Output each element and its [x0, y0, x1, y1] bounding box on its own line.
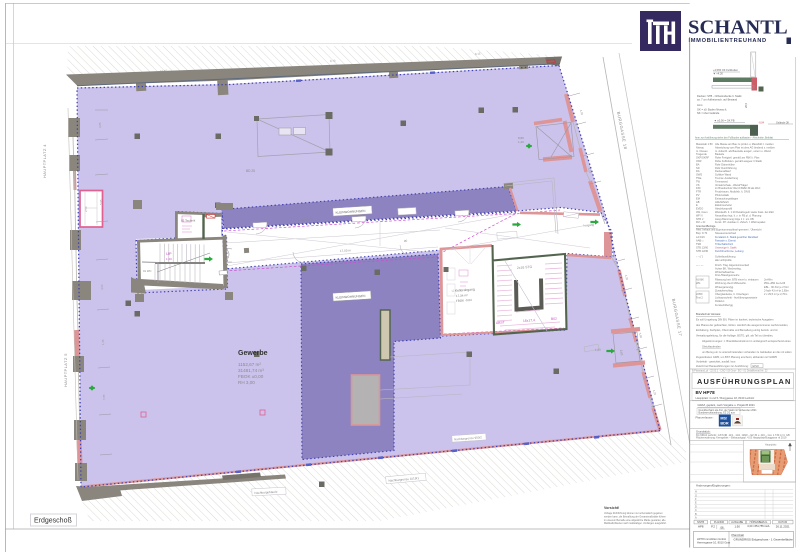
svg-text:Abschlussprofil: Abschlussprofil	[715, 207, 733, 211]
svg-text:Tragende: Tragende	[696, 152, 707, 156]
svg-text:TWa: TWa	[696, 176, 702, 180]
svg-text:NK = über Gelände: NK = über Gelände	[697, 111, 720, 115]
svg-text:7,85: 7,85	[102, 394, 106, 400]
svg-text:IMMOBILIENTREUHAND: IMMOBILIENTREUHAND	[689, 38, 767, 44]
svg-text:E: E	[696, 203, 698, 207]
svg-text:HAUPTPLATZ 5: HAUPTPLATZ 5	[63, 353, 68, 387]
svg-text:m. Aufenth. als Baustelle ausg: m. Aufenth. als Baustelle ausgef., exter…	[715, 149, 771, 153]
svg-text:ca. 7 cm Aufbetonsch. auf Best: ca. 7 cm Aufbetonsch. auf Bestand	[697, 98, 738, 102]
svg-text:AUSFÜHRUNGSPLAN: AUSFÜHRUNGSPLAN	[697, 377, 791, 386]
svg-text:TSB: TSB	[696, 242, 701, 246]
svg-text:F30: F30	[696, 186, 701, 190]
svg-text:Grenzen/Bezüge: Grenzen/Bezüge	[696, 224, 716, 228]
svg-text:Flächenwidmung: Kerngebiet – B: Flächenwidmung: Kerngebiet – Bebauungspl…	[696, 437, 787, 440]
svg-text:Fenst. Prf. Ausbau m. Zubeh. f: Fenst. Prf. Ausbau m. Zubeh. f. Wärmepak…	[715, 220, 766, 224]
svg-text:2,50: 2,50	[84, 206, 88, 212]
svg-text:EVDO: EVDO	[696, 207, 703, 211]
svg-text:Abweichung vom Plan ist dem AG: Abweichung vom Plan ist dem AG bindend z…	[715, 145, 775, 149]
svg-text:BDR: BDR	[720, 422, 728, 426]
svg-text:H: H	[695, 491, 697, 494]
svg-text:▼ ±0,00 = OK FB: ▼ ±0,00 = OK FB	[714, 119, 735, 123]
svg-text:2,01/2,26: 2,01/2,26	[300, 217, 313, 222]
svg-text:Maßfestlichkeiten nach maßstab: Maßfestlichkeiten nach maßstabger. Umfän…	[604, 522, 667, 525]
svg-text:GRUNDRISS Erdgeschoss - 1 Ge: GRUNDRISS Erdgeschoss - 1 Gewerbefläche	[734, 538, 794, 542]
svg-text:BA: BA	[696, 162, 700, 166]
svg-text:HAUPTPLATZ 4: HAUPTPLATZ 4	[42, 144, 47, 178]
svg-text:Abgestimmungen: z. Brandüberei: Abgestimmungen: z. Brandübereinstimmt in…	[702, 339, 791, 343]
svg-text:+4,565 OK Fußboden: +4,565 OK Fußboden	[713, 68, 739, 72]
svg-text:Niveauunterschied: Niveauunterschied	[715, 231, 737, 235]
svg-text:Erdgeschoß: Erdgeschoß	[34, 518, 72, 525]
svg-text:Feuchtraum, Abdichtb. lt. ÖN B: Feuchtraum, Abdichtb. lt. ÖN B	[715, 190, 750, 194]
svg-text:3,85: 3,85	[98, 122, 102, 128]
svg-text:m. Niveau: m. Niveau	[696, 149, 708, 153]
svg-text:Einhaltung, Fachplan, Obermaße: Einhaltung, Fachplan, Obermaße und Bemaß…	[696, 328, 778, 332]
svg-text:FBOK ±0,00: FBOK ±0,00	[238, 374, 264, 379]
svg-text:First-/Wandgeometrie: First-/Wandgeometrie	[715, 273, 740, 277]
svg-text:PLANNR: PLANNR	[714, 521, 724, 524]
svg-text:Bundesrechtsordnung, EZ 2/2 au: Bundesrechtsordnung, EZ 2/2 aus	[699, 411, 736, 414]
svg-text:OKF/OKRF: OKF/OKRF	[696, 156, 709, 160]
svg-text:Rfassung betr. BTB einzel u. e: Rfassung betr. BTB einzel u. einbauen	[715, 278, 759, 282]
svg-text:1152,67 m²: 1152,67 m²	[238, 362, 261, 367]
svg-text:FM + 2J: FM + 2J	[696, 220, 706, 224]
svg-text:WG: WG	[696, 281, 700, 285]
svg-text:Ausg./Dämmung folge 1 z. um OB: Ausg./Dämmung folge 1 z. um OB	[715, 217, 754, 221]
svg-text:STB 12/60: STB 12/60	[696, 246, 709, 250]
svg-text:des Planes der gebrachten, feh: des Planes der gebrachten, fehlen. sämtl…	[696, 323, 789, 327]
svg-text:Rohr Dämmhülse: Rohr Dämmhülse	[715, 162, 735, 166]
svg-text:HÖHENBEZUG: HÖHENBEZUG	[750, 521, 768, 524]
svg-text:alle Lichtprofile: alle Lichtprofile	[715, 259, 732, 262]
svg-text:MS!: MS!	[720, 417, 727, 421]
svg-text:Vorbehalt - gewichtet, ausfall: Vorbehalt - gewichtet, ausfall. bzw.	[696, 360, 736, 364]
svg-text:1,35: 1,35	[101, 339, 105, 345]
svg-text:Rohr Durchführung: Rohr Durchführung	[715, 166, 737, 170]
svg-text:8,15: 8,15	[475, 52, 481, 56]
svg-text:Deckenablauf: Deckenablauf	[715, 169, 731, 173]
svg-text:Entrauchungsklappe: Entrauchungsklappe	[715, 196, 739, 200]
svg-text:Gewerbe: Gewerbe	[238, 350, 268, 357]
svg-text:Abst. bebaut und Eigentumsnach: Abst. bebaut und Eigentumsnachbar/-grenz…	[696, 228, 762, 232]
svg-text:Wandaufb. lt. 1:10 Detailregel: Wandaufb. lt. 1:10 Detailregeln sowie Fa…	[715, 210, 774, 214]
svg-text:PV: PV	[696, 193, 700, 197]
svg-text:Rollo/en: Rollo/en	[715, 299, 725, 303]
svg-text:ZWL+RW 1a-2+06: ZWL+RW 1a-2+06	[764, 281, 786, 285]
svg-text:SCHANTL: SCHANTL	[688, 17, 788, 39]
svg-text:AAB □: AAB □	[696, 238, 704, 242]
svg-text:1,20: 1,20	[518, 140, 524, 144]
svg-text:5,95: 5,95	[99, 199, 103, 205]
svg-text:Trennw. Ausfachung: Trennw. Ausfachung	[715, 176, 739, 180]
svg-text:UP: UP	[166, 251, 172, 256]
svg-text:BV HP78: BV HP78	[696, 390, 716, 395]
svg-text:Fensterlüfter/gg: Fensterlüfter/gg	[715, 303, 733, 307]
svg-text:1,00: 1,00	[166, 257, 172, 261]
svg-text:2 x 29,5 m² je 2,70m: 2 x 29,5 m² je 2,70m	[764, 292, 787, 296]
svg-text:Vorsicht!: Vorsicht!	[604, 506, 619, 510]
svg-text:OKR: OKR	[696, 159, 702, 163]
svg-text:VS: VS	[696, 183, 700, 187]
svg-text:Alle Masse am Bau zu prüfen u.: Alle Masse am Bau zu prüfen u. Massbild …	[715, 142, 774, 146]
svg-text:Planverfasser:: Planverfasser:	[696, 415, 714, 419]
svg-text:P.2: P.2	[711, 525, 715, 529]
svg-text:-0,04: -0,04	[759, 122, 765, 125]
svg-text:Fundation lt. Statik gesichter: Fundation lt. Statik gesichter Randlauf	[715, 235, 758, 239]
svg-text:Wirtschaftsachse: Wirtschaftsachse	[715, 270, 735, 274]
svg-text:26,5: 26,5	[744, 102, 748, 108]
svg-text:Fassade o. Eternit: Fassade o. Eternit	[715, 238, 736, 242]
svg-text:Zuletzt bei Planausführungen z: Zuletzt bei Planausführungen zur Ausführ…	[696, 364, 749, 368]
svg-text:Schlitze Wand: Schlitze Wand	[715, 173, 732, 177]
svg-text:Massstab 1:50: Massstab 1:50	[696, 142, 713, 146]
svg-text:9,70: 9,70	[330, 59, 336, 63]
svg-text:DATUM: DATUM	[778, 521, 787, 524]
svg-text:0,00 =351,755 müA: 0,00 =351,755 müA	[748, 525, 770, 528]
svg-text:Überglasdecke, lt. Unterlagen: Überglasdecke, lt. Unterlagen	[715, 292, 749, 296]
svg-text:Rohe Fertigteil. gemäß am FBK: Rohe Fertigteil. gemäß am FBK lt. Plan	[715, 156, 760, 160]
svg-text:Decken: STB - Ortbetondecke lt: Decken: STB - Ortbetondecke lt. Statik	[697, 94, 742, 98]
svg-text:Anm zur Ausführung siehe den F: Anm zur Ausführung siehe den Fußboden au…	[695, 137, 773, 140]
svg-text:EM: EM	[696, 196, 700, 200]
svg-text:LA 0/16: LA 0/16	[696, 235, 705, 239]
svg-text:Anm:: Anm:	[697, 103, 703, 107]
svg-text:Hauptplatz 4 und 5 / Burggasse: Hauptplatz 4 und 5 / Burggasse 18, 8430 …	[696, 396, 756, 400]
svg-text:Photovoltaik: Photovoltaik	[715, 193, 730, 197]
svg-text:Rohe Fußböden. gemäß ausgew. l: Rohe Fußböden. gemäß ausgew. lt.Statik	[715, 159, 763, 163]
svg-text:WF N: WF N	[696, 213, 703, 217]
svg-text:Niveau: Niveau	[696, 145, 705, 149]
svg-text:B02: B02	[551, 317, 557, 321]
svg-text:Vorsatzschale - Wand/Träger: Vorsatzschale - Wand/Träger	[715, 183, 748, 187]
svg-text:DA: DA	[696, 169, 700, 173]
svg-text:— - —: — - —	[696, 264, 704, 267]
svg-text:ABST: ABST	[496, 320, 505, 325]
svg-text:Text 2: Text 2	[696, 296, 703, 300]
svg-text:C: C	[695, 509, 697, 512]
svg-text:GWS: GWS	[696, 173, 702, 177]
svg-text:26.11.2021: 26.11.2021	[776, 525, 790, 529]
svg-text:STB 12/30: STB 12/30	[696, 249, 709, 253]
svg-text:2-fach 43 m² je 2,65m: 2-fach 43 m² je 2,65m	[764, 288, 789, 292]
svg-text:Schleifausführung: Schleifausführung	[715, 254, 736, 258]
svg-text:NTR 2: NTR 2	[696, 217, 704, 221]
svg-text:Herrengasse 10, 8010 Graz: Herrengasse 10, 8010 Graz	[697, 541, 731, 545]
svg-text:G: G	[695, 494, 697, 497]
svg-text:01 WC: 01 WC	[143, 269, 152, 273]
svg-text:Änderungen/Ergänzungen:: Änderungen/Ergänzungen:	[696, 484, 731, 488]
svg-text:HP78 Immobilien GmbH: HP78 Immobilien GmbH	[697, 537, 726, 541]
svg-text:Planinhalt: Planinhalt	[732, 533, 745, 537]
svg-text:1:50: 1:50	[734, 525, 740, 529]
svg-text:HP8: HP8	[698, 525, 704, 529]
svg-text:Es soll Umgebung DIN EN, Pläne: Es soll Umgebung DIN EN, Pläne im konkre…	[696, 317, 774, 321]
svg-text:MSTB: MSTB	[697, 521, 704, 524]
svg-text:4,60: 4,60	[100, 284, 104, 290]
svg-text:⌐ ¬ |¯|: ⌐ ¬ |¯|	[696, 254, 703, 258]
svg-text:Wohnung oben/ Mitbewohn.: Wohnung oben/ Mitbewohn.	[715, 281, 747, 285]
svg-text:05 Technik: 05 Technik	[181, 219, 196, 223]
svg-text:2m²/lfm: 2m²/lfm	[764, 278, 773, 282]
svg-text:GRAZ, geplant, nach Vorgabe u.: GRAZ, geplant, nach Vorgabe u. Projekt B…	[698, 403, 756, 407]
svg-text:16x17,4: 16x17,4	[523, 318, 535, 323]
svg-text:Achse BK, Wechselstg.: Achse BK, Wechselstg.	[715, 266, 742, 270]
svg-text:Bsp: N 70: Bsp: N 70	[696, 231, 708, 235]
svg-text:D: D	[695, 505, 697, 508]
svg-text:Grundstück:: Grundstück:	[696, 429, 711, 433]
svg-text:Verwaltungsleitung, für die Au: Verwaltungsleitung, für die Auflage. BST…	[696, 334, 774, 338]
svg-text:B:Planstand_pl - 22.03.1 - CAD: B:Planstand_pl - 22.03.1 - CAD / 03 Graz…	[692, 370, 768, 373]
svg-text:BD 25: BD 25	[246, 169, 255, 173]
svg-text:NU BK: NU BK	[696, 278, 704, 282]
svg-text:im Brandschutz Wert F30/EI 30: im Brandschutz Wert F30/EI 30 als Wert	[715, 186, 761, 190]
svg-text:RH 3,00: RH 3,00	[238, 380, 255, 385]
svg-text:17,03 m: 17,03 m	[340, 248, 352, 253]
svg-text:EP22: EP22	[753, 364, 760, 368]
svg-text:Wintergarten/gg.: Wintergarten/gg.	[715, 285, 734, 289]
svg-text:TW: TW	[696, 179, 701, 183]
svg-text:Zusatzbeschlag: Zusatzbeschlag	[715, 288, 733, 292]
svg-text:FTR: FTR	[696, 190, 701, 194]
svg-text:Brandschutz Hinweis:: Brandschutz Hinweis:	[696, 312, 721, 316]
svg-text:22/50: 22/50	[696, 292, 703, 296]
svg-text:Elektroverteiler: Elektroverteiler	[715, 203, 732, 207]
svg-text:AUSGABE: AUSGABE	[731, 521, 743, 524]
svg-text:Trittschallschutz: Trittschallschutz	[715, 242, 734, 246]
svg-text:Gleichlaufenden: Gleichlaufenden	[702, 344, 721, 348]
svg-text:Firsth. Träg. Eigentumsverlauf: Firsth. Träg. Eigentumsverlauf	[715, 263, 749, 267]
svg-text:Neuaufbau legt. lt. z. in FB p: Neuaufbau legt. lt. z. in FB pl. d. Plan…	[715, 213, 762, 217]
svg-text:90: 90	[404, 239, 408, 243]
svg-text:Abluft/Zuluft: Abluft/Zuluft	[715, 200, 729, 204]
svg-text:um Bezug ein zu unterschreiten: um Bezug ein zu unterschreitenden vorhan…	[702, 350, 792, 354]
svg-text:Lichtausschnitt - Ausführungsv: Lichtausschnitt - Ausführungsvariante	[715, 296, 758, 300]
svg-text:AW, innen: AW, innen	[696, 210, 708, 214]
svg-text:Trennwand: Trennwand	[715, 179, 728, 183]
svg-text:31481,74 m³: 31481,74 m³	[238, 368, 264, 373]
svg-text:Bauteile: Bauteile	[715, 152, 725, 156]
svg-text:AB: AB	[696, 200, 700, 204]
svg-text:Unterzüge lt. Statik: Unterzüge lt. Statik	[715, 246, 737, 250]
svg-text:Zugeordneten GWR, um BST Planu: Zugeordneten GWR, um BST Planung erschei…	[696, 355, 778, 359]
svg-text:12,45: 12,45	[160, 69, 168, 73]
svg-text:Durchbruchzone, Leitung: Durchbruchzone, Leitung	[715, 249, 744, 253]
svg-text:EBL - 30 3m² je 2,5m²: EBL - 30 3m² je 2,5m²	[764, 285, 789, 289]
svg-text:17,34 m²: 17,34 m²	[456, 293, 468, 298]
svg-text:SD: SD	[696, 166, 700, 170]
svg-text:Hauptplatz: Hauptplatz	[765, 443, 777, 446]
